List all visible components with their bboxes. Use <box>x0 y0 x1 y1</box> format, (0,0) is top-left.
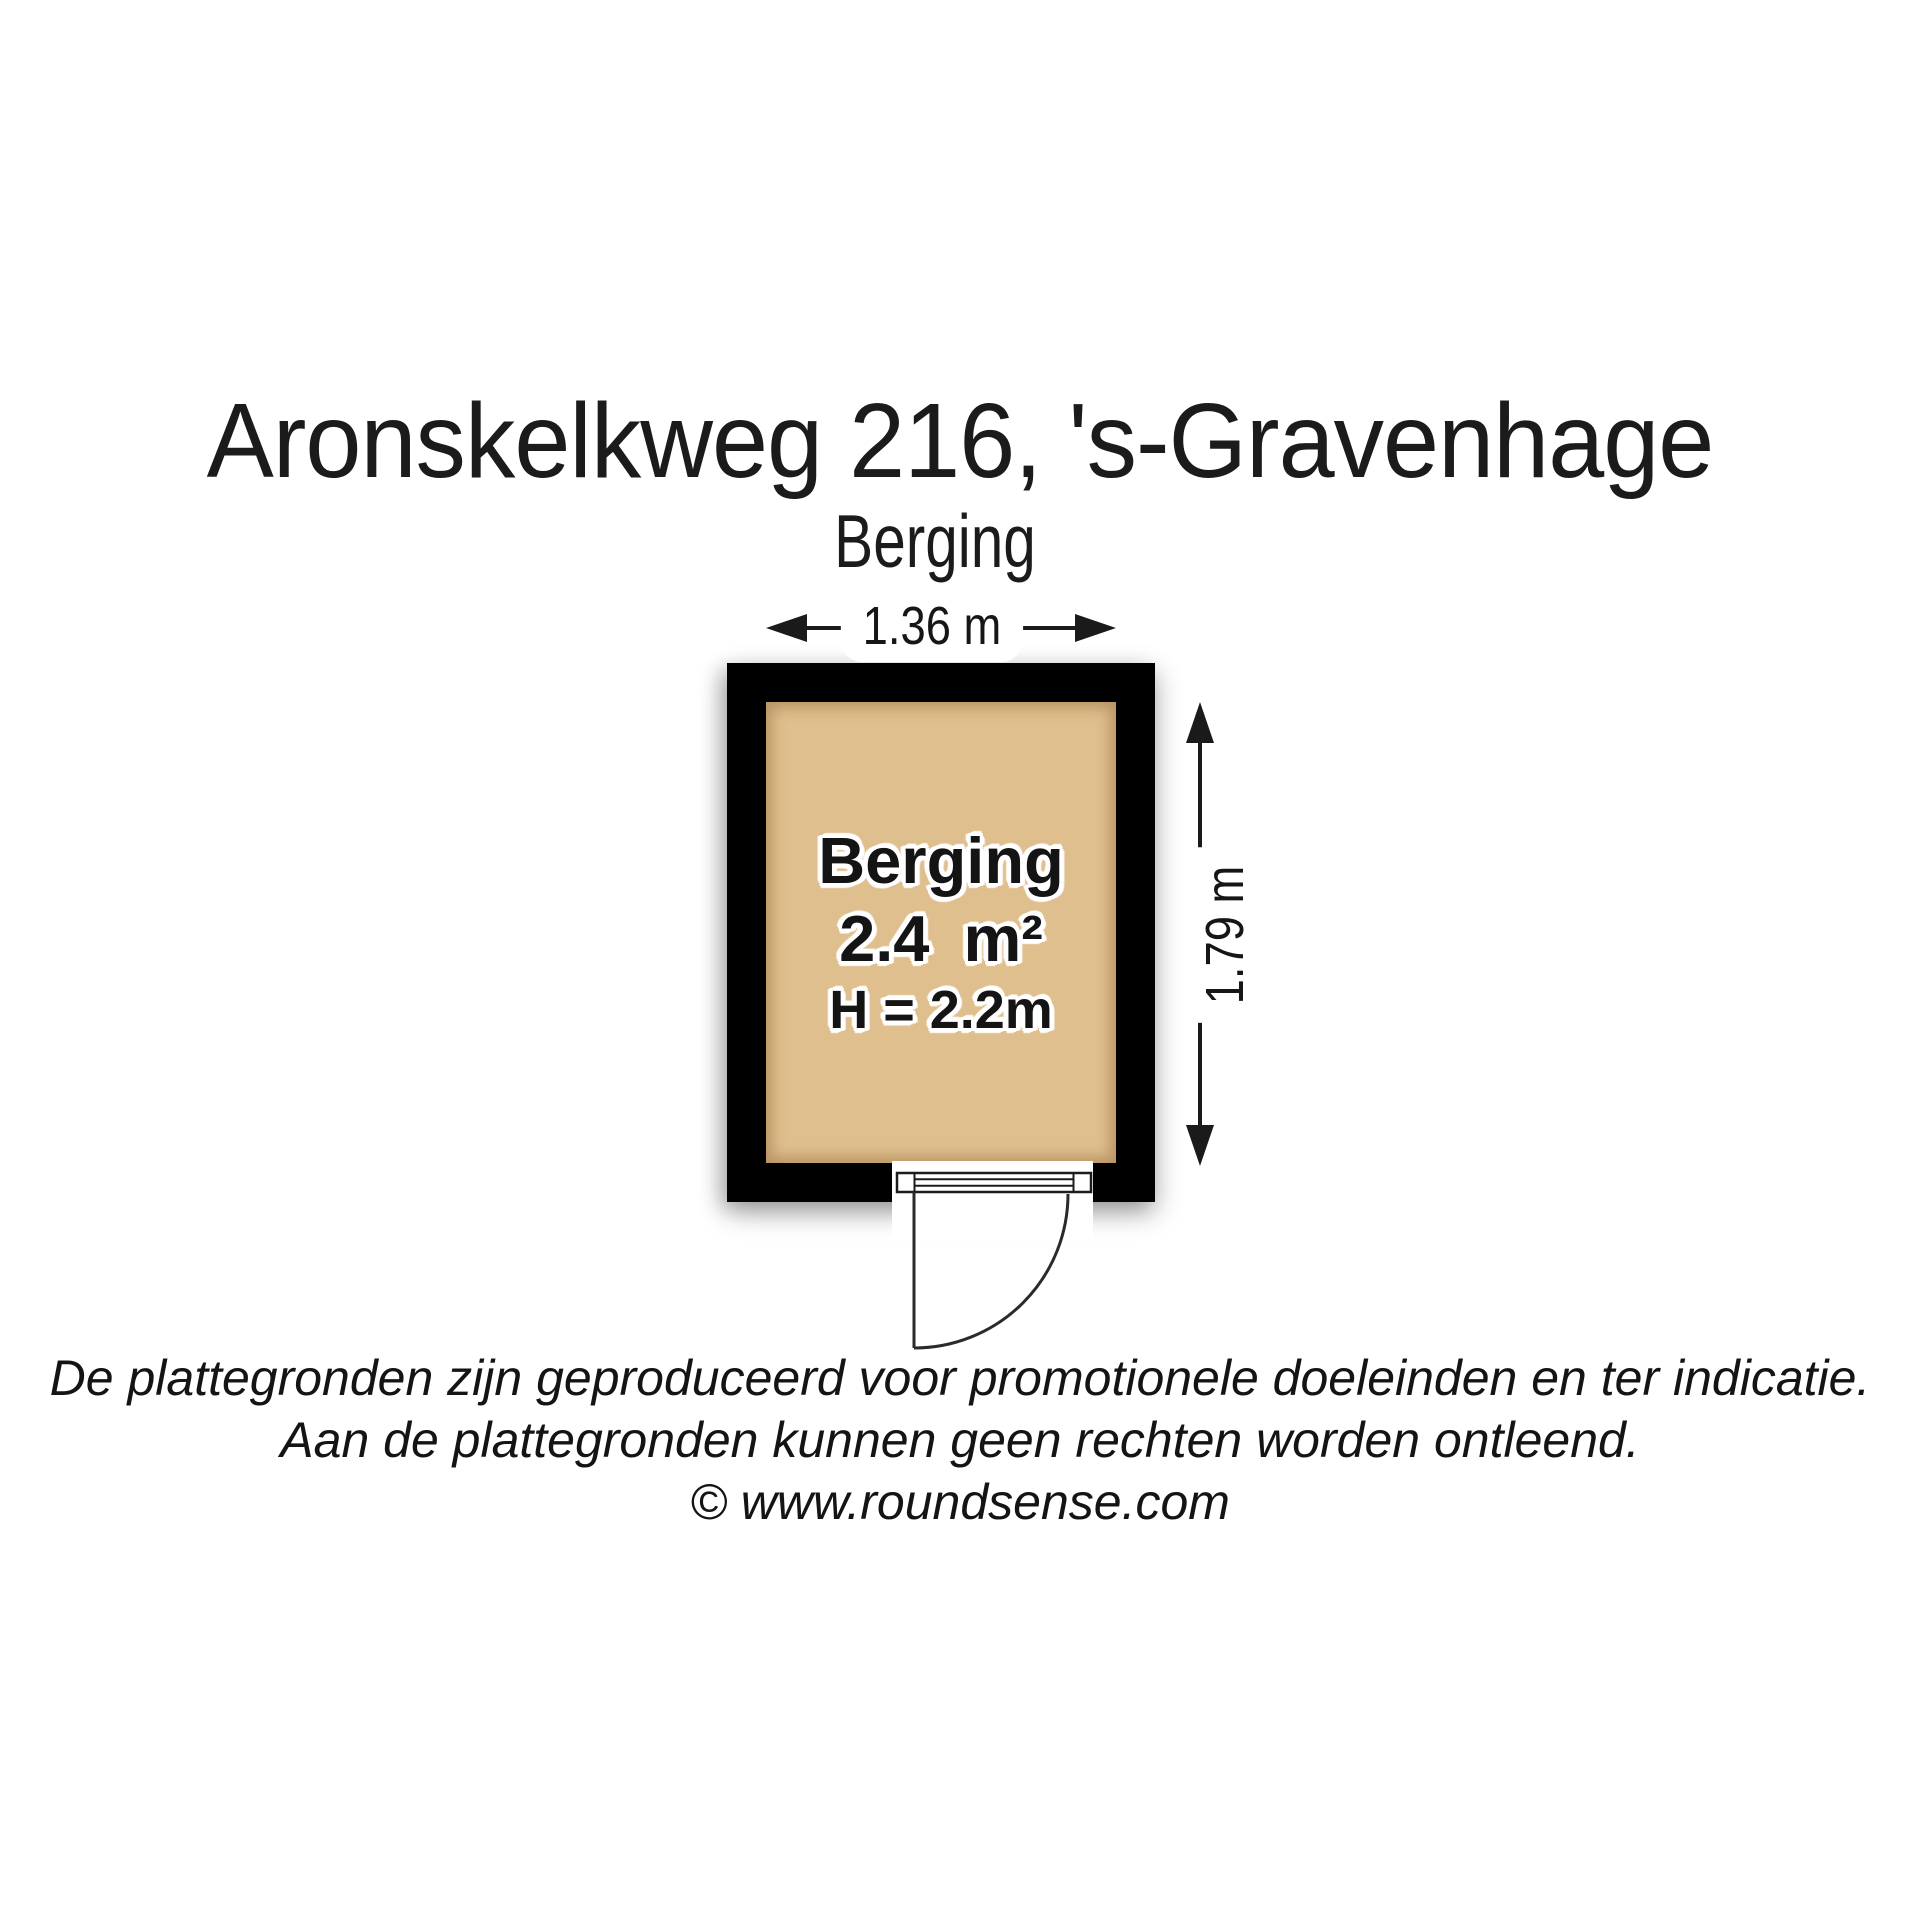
footer: De plattegronden zijn geproduceerd voor … <box>0 1347 1920 1533</box>
disclaimer-line-1: De plattegronden zijn geproduceerd voor … <box>0 1347 1920 1409</box>
room-ceiling-height: H = 2.2m <box>829 978 1053 1043</box>
room-label: Berging 2.4 m² H = 2.2m <box>766 702 1116 1163</box>
page-title: Aronskelkweg 216, 's-Gravenhage <box>48 388 1872 494</box>
arrow-down-icon <box>1186 1125 1214 1166</box>
arrow-right-icon <box>1075 614 1116 642</box>
depth-dimension-label: 1.79 m <box>1192 847 1258 1023</box>
room-area: 2.4 m² <box>839 900 1043 978</box>
room-name: Berging <box>818 822 1064 900</box>
door-swing-arc <box>914 1194 1068 1348</box>
floorplan-page: Aronskelkweg 216, 's-Gravenhage Berging <box>0 0 1920 1920</box>
arrow-left-icon <box>766 614 807 642</box>
page-subtitle: Berging <box>834 504 1036 579</box>
credit-line: © www.roundsense.com <box>0 1471 1920 1533</box>
disclaimer-line-2: Aan de plattegronden kunnen geen rechten… <box>0 1409 1920 1471</box>
width-dimension-label: 1.36 m <box>841 590 1023 662</box>
arrow-up-icon <box>1186 702 1214 743</box>
